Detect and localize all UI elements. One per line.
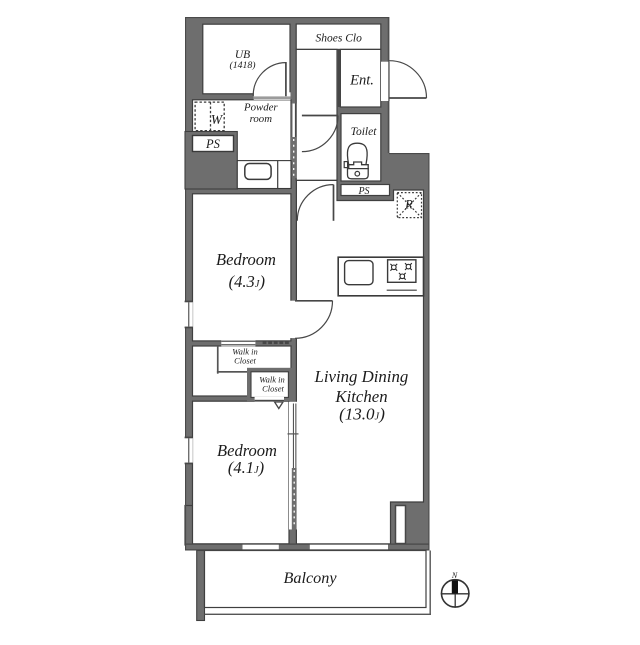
- svg-text:Powder: Powder: [243, 102, 278, 114]
- svg-text:N: N: [451, 571, 458, 580]
- svg-text:Closet: Closet: [234, 356, 256, 366]
- svg-text:(1418): (1418): [229, 60, 255, 71]
- svg-text:Bedroom: Bedroom: [216, 250, 276, 269]
- svg-text:(4.3J): (4.3J): [229, 272, 265, 291]
- svg-text:Closet: Closet: [262, 384, 284, 394]
- svg-text:R: R: [404, 198, 413, 212]
- svg-text:Living Dining: Living Dining: [314, 367, 409, 386]
- svg-text:W: W: [211, 112, 224, 127]
- svg-text:Kitchen: Kitchen: [334, 387, 387, 406]
- svg-text:Shoes Clo: Shoes Clo: [316, 33, 363, 45]
- svg-text:PS: PS: [205, 137, 221, 151]
- svg-text:(13.0J): (13.0J): [339, 405, 385, 424]
- svg-text:Ent.: Ent.: [349, 73, 374, 89]
- svg-text:(4.1J): (4.1J): [228, 458, 264, 477]
- svg-text:PS: PS: [357, 186, 369, 197]
- svg-text:Balcony: Balcony: [283, 569, 337, 587]
- svg-text:room: room: [250, 113, 273, 125]
- svg-text:Toilet: Toilet: [351, 126, 378, 138]
